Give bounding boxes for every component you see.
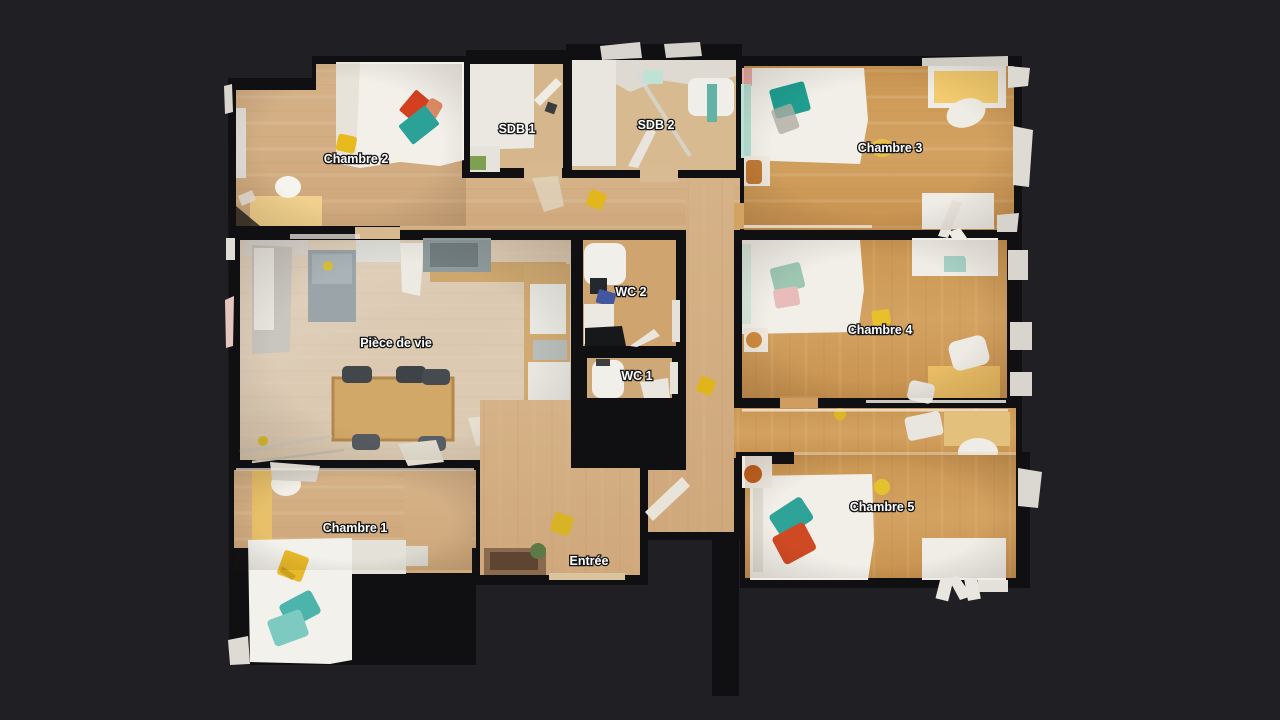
svg-text:Chambre 1: Chambre 1 bbox=[323, 521, 388, 535]
svg-text:WC 2: WC 2 bbox=[615, 285, 646, 299]
svg-text:Chambre 3: Chambre 3 bbox=[858, 141, 923, 155]
svg-text:WC 1: WC 1 bbox=[621, 369, 652, 383]
svg-text:Chambre 2: Chambre 2 bbox=[324, 152, 389, 166]
svg-text:Entrée: Entrée bbox=[570, 554, 609, 568]
svg-text:Chambre 5: Chambre 5 bbox=[850, 500, 915, 514]
svg-text:SDB 2: SDB 2 bbox=[638, 118, 675, 132]
svg-text:Pièce de vie: Pièce de vie bbox=[360, 336, 432, 350]
svg-text:SDB 1: SDB 1 bbox=[499, 122, 536, 136]
svg-text:Chambre 4: Chambre 4 bbox=[848, 323, 913, 337]
